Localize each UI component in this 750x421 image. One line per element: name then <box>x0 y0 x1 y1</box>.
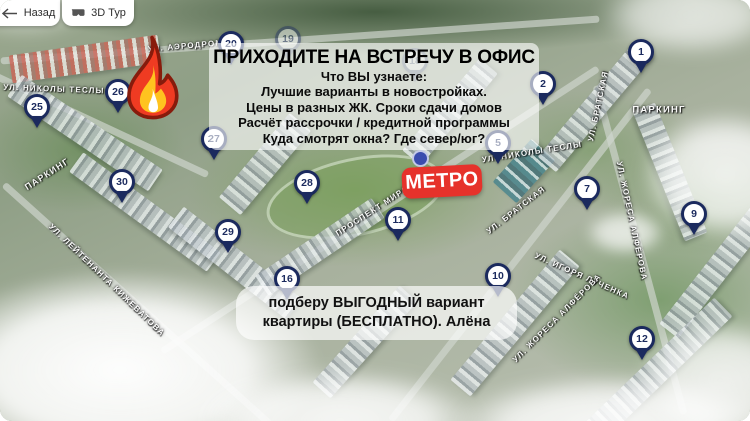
fire-icon <box>111 33 192 122</box>
promo-overlay: ПРИХОДИТЕ НА ВСТРЕЧУ В ОФИС Что ВЫ узнае… <box>209 43 539 150</box>
promo-line: Расчёт рассрочки / кредитной программы <box>211 115 537 130</box>
promo-title: ПРИХОДИТЕ НА ВСТРЕЧУ В ОФИС <box>211 46 537 69</box>
pin-tip-icon <box>634 61 648 73</box>
map-pin-29[interactable]: 29 <box>215 219 241 253</box>
map-pin-28[interactable]: 28 <box>294 170 320 204</box>
back-button-label: Назад <box>24 7 56 19</box>
offer-overlay: подберу ВЫГОДНЫЙ вариант квартиры (БЕСПЛ… <box>236 286 517 340</box>
map-viewport[interactable]: УЛ. АЭРОДРОМНАЯУЛ. НИКОЛЫ ТЕСЛЫПАРКИНГУЛ… <box>0 0 750 421</box>
map-pin-12[interactable]: 12 <box>629 326 655 360</box>
pin-tip-icon <box>391 229 405 241</box>
vr-goggles-icon <box>70 8 85 18</box>
map-pin-9[interactable]: 9 <box>681 201 707 235</box>
pin-tip-icon <box>580 198 594 210</box>
promo-line: Куда смотрят окна? Где север/юг? <box>211 131 537 146</box>
pin-tip-icon <box>300 192 314 204</box>
pin-tip-icon <box>30 116 44 128</box>
map-pin-30[interactable]: 30 <box>109 169 135 203</box>
offer-line-2: квартиры (БЕСПЛАТНО). Алёна <box>240 313 513 332</box>
tour-3d-button-label: 3D Тур <box>91 7 126 19</box>
metro-station-icon <box>412 150 429 167</box>
pin-tip-icon <box>491 152 505 164</box>
tour-3d-button[interactable]: 3D Тур <box>62 0 134 26</box>
map-pin-7[interactable]: 7 <box>574 176 600 210</box>
pin-tip-icon <box>687 223 701 235</box>
back-button[interactable]: Назад <box>0 0 60 26</box>
map-pin-1[interactable]: 1 <box>628 39 654 73</box>
metro-badge: МЕТРО <box>401 164 483 199</box>
promo-line: Лучшие варианты в новостройках. <box>211 84 537 99</box>
arrow-left-icon <box>1 8 18 19</box>
promo-subtitle: Что ВЫ узнаете: <box>211 69 537 84</box>
offer-line-1: подберу ВЫГОДНЫЙ вариант <box>240 294 513 313</box>
promo-line: Цены в разных ЖК. Сроки сдачи домов <box>211 100 537 115</box>
pin-tip-icon <box>635 348 649 360</box>
pin-tip-icon <box>221 241 235 253</box>
map-pin-25[interactable]: 25 <box>24 94 50 128</box>
pin-tip-icon <box>115 191 129 203</box>
map-pin-11[interactable]: 11 <box>385 207 411 241</box>
promo-lines: Лучшие варианты в новостройках.Цены в ра… <box>211 84 537 146</box>
